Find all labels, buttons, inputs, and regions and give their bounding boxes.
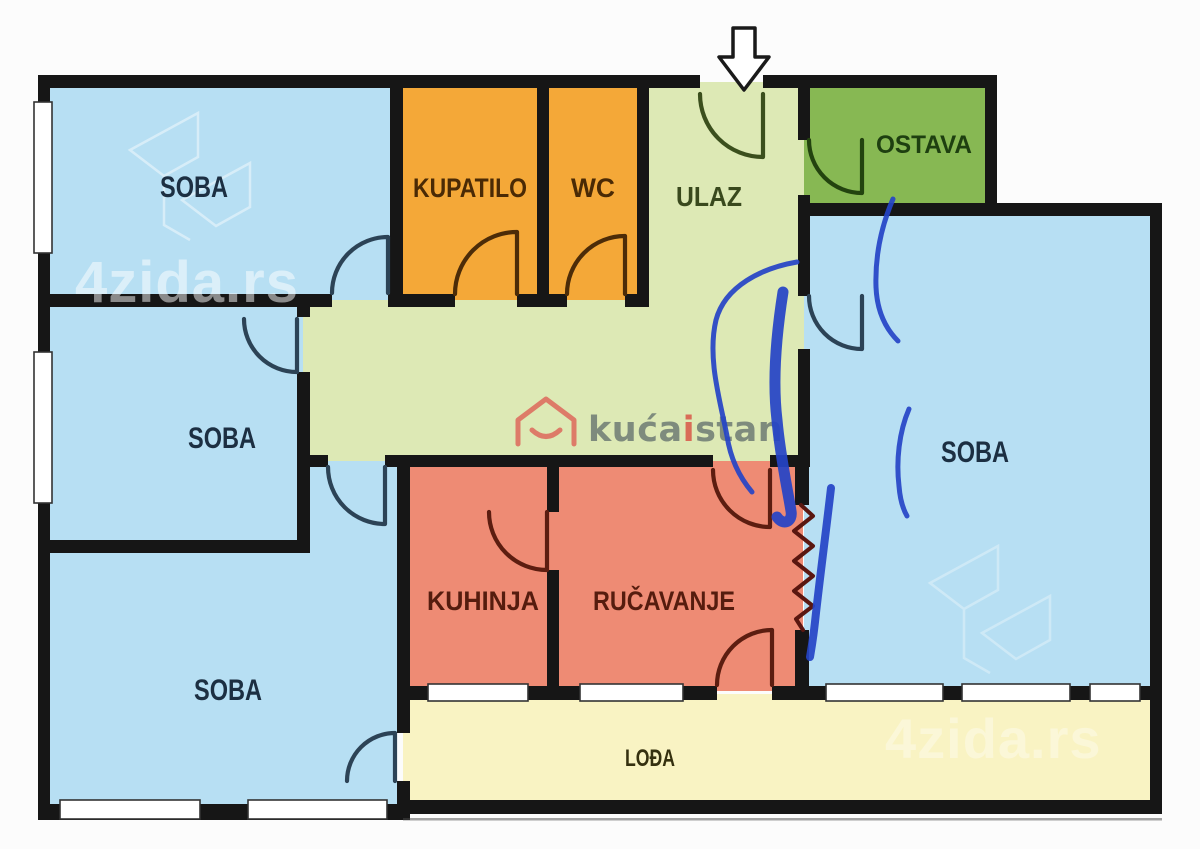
label-ostava: OSTAVA <box>876 131 972 159</box>
window <box>248 800 387 819</box>
window <box>826 684 943 701</box>
label-lodja: LOĐA <box>625 745 675 772</box>
label-ulaz: ULAZ <box>676 181 742 212</box>
entrance-arrow-icon <box>719 28 769 90</box>
window <box>34 102 52 253</box>
label-soba-bottom-left: SOBA <box>194 674 262 707</box>
label-kupatilo: KUPATILO <box>413 173 527 203</box>
window <box>1090 684 1140 701</box>
loggia-outer-line <box>403 818 1162 821</box>
label-kuhinja: KUHINJA <box>427 586 539 616</box>
watermark-brand-text: 4zida.rs <box>75 250 299 315</box>
floorplan-svg: 4zida.rs 4zida.rs SOBA KUPATILO WC ULAZ … <box>0 0 1200 849</box>
window <box>580 684 683 701</box>
window <box>60 800 200 819</box>
label-wc: WC <box>571 173 615 203</box>
room-kuhinja <box>403 461 553 691</box>
label-soba-top-left: SOBA <box>160 171 228 204</box>
kucaistan-logo-text: kućaistan <box>588 410 783 450</box>
room-soba-middle-left <box>44 300 303 547</box>
label-soba-right: SOBA <box>941 436 1009 469</box>
window <box>962 684 1070 701</box>
window <box>428 684 528 701</box>
label-soba-middle-left: SOBA <box>188 422 256 455</box>
watermark-brand-text-2: 4zida.rs <box>885 707 1102 770</box>
floorplan-image: 4zida.rs 4zida.rs SOBA KUPATILO WC ULAZ … <box>0 0 1200 849</box>
label-rucavanje: RUČAVANJE <box>593 585 735 616</box>
room-rucavanje <box>553 461 803 691</box>
window <box>34 352 52 503</box>
